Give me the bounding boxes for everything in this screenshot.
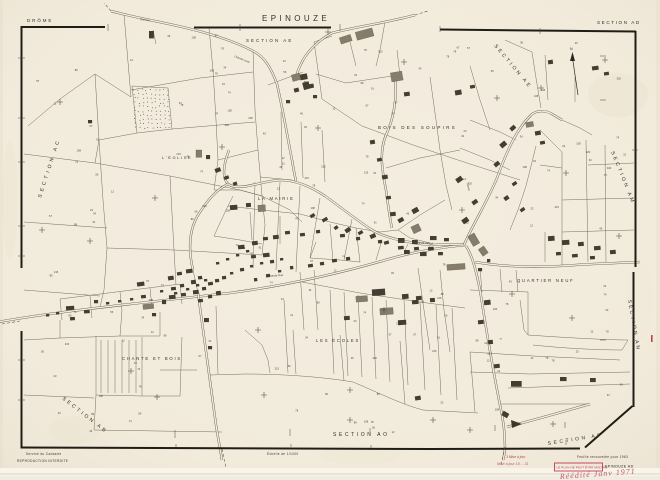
svg-text:108: 108 (523, 165, 528, 169)
svg-text:108: 108 (311, 206, 316, 210)
svg-text:Échelle de 1/1000: Échelle de 1/1000 (267, 451, 298, 456)
svg-text:108: 108 (248, 116, 253, 120)
svg-text:108: 108 (534, 94, 539, 98)
svg-text:320: 320 (378, 49, 383, 53)
svg-text:108: 108 (541, 88, 546, 92)
svg-text:EPINOUZE: EPINOUZE (262, 14, 330, 23)
svg-text:L'ÉGLISE: L'ÉGLISE (162, 155, 192, 160)
svg-text:Feuille renouvelée pour 1963: Feuille renouvelée pour 1963 (577, 455, 628, 459)
svg-text:Service du Cadastre: Service du Cadastre (26, 452, 62, 456)
svg-text:320: 320 (586, 150, 591, 154)
svg-text:108: 108 (226, 209, 231, 213)
svg-text:DRÔME: DRÔME (27, 18, 53, 23)
svg-text:CHANTE ET BOIS: CHANTE ET BOIS (122, 356, 182, 361)
svg-text:215: 215 (555, 205, 560, 209)
svg-text:LA MAIRIE: LA MAIRIE (258, 196, 295, 201)
svg-text:108: 108 (99, 394, 104, 398)
svg-text:108: 108 (227, 108, 232, 112)
svg-text:215: 215 (65, 342, 70, 346)
svg-text:215: 215 (321, 165, 326, 169)
svg-text:SECTION AO: SECTION AO (333, 432, 390, 438)
svg-text:3 Mise à jour: 3 Mise à jour (506, 455, 526, 459)
svg-text:215: 215 (54, 270, 59, 274)
svg-text:108: 108 (364, 419, 369, 423)
svg-text:108: 108 (210, 69, 215, 73)
svg-text:215: 215 (305, 176, 310, 180)
svg-text:REPRODUCTION INTERDITE: REPRODUCTION INTERDITE (17, 459, 68, 463)
svg-text:108: 108 (149, 298, 154, 302)
svg-text:320: 320 (373, 356, 378, 360)
svg-text:108: 108 (576, 141, 581, 145)
svg-text:108: 108 (495, 408, 500, 412)
svg-text:QUARTIER NEUF: QUARTIER NEUF (517, 278, 575, 283)
svg-text:215: 215 (275, 366, 280, 370)
svg-text:108: 108 (192, 36, 197, 40)
svg-text:320: 320 (617, 76, 622, 80)
svg-text:320: 320 (493, 307, 498, 311)
svg-text:320: 320 (464, 221, 469, 225)
svg-text:320: 320 (225, 123, 230, 127)
svg-text:Mise à jour 19.. ..31: Mise à jour 19.. ..31 (497, 462, 529, 466)
svg-text:320: 320 (607, 166, 612, 170)
svg-text:LES ÉCOLES: LES ÉCOLES (316, 338, 360, 343)
svg-text:215: 215 (437, 296, 442, 300)
svg-text:215: 215 (396, 322, 401, 326)
svg-text:215: 215 (432, 349, 437, 353)
svg-text:215: 215 (364, 170, 369, 174)
svg-text:320: 320 (487, 352, 492, 356)
svg-text:108: 108 (77, 149, 82, 153)
svg-text:SECTION AE: SECTION AE (246, 38, 293, 43)
svg-text:SECTION AD: SECTION AD (597, 20, 641, 25)
svg-text:BOIS DES SOUPIRS: BOIS DES SOUPIRS (378, 125, 457, 130)
svg-text:320: 320 (202, 204, 207, 208)
